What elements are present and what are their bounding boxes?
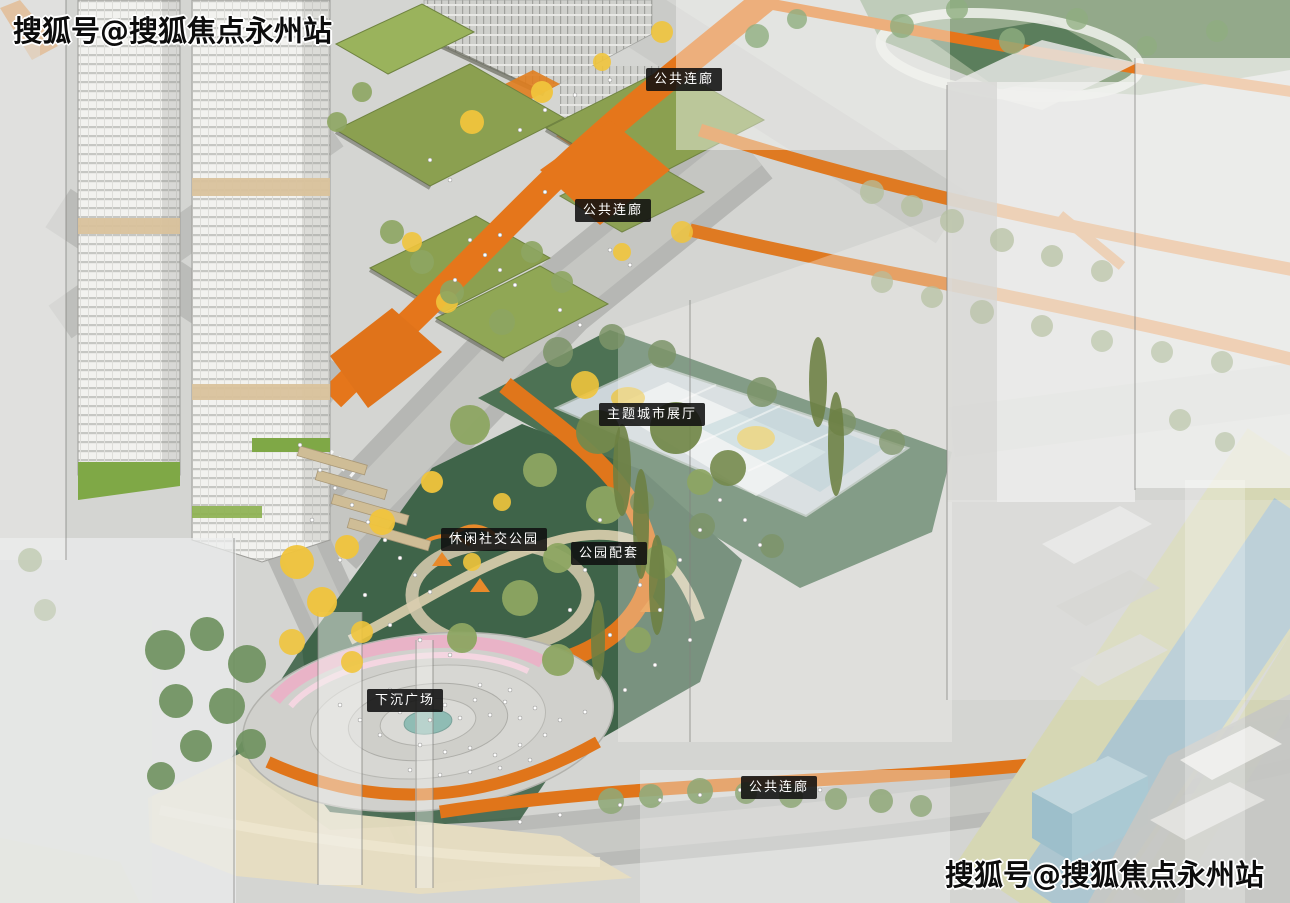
label-leisure-social-park: 休闲社交公园	[441, 528, 547, 551]
label-public-corridor-bottom: 公共连廊	[741, 776, 817, 799]
label-theme-city-exhibition-hall: 主题城市展厅	[599, 403, 705, 426]
label-park-amenities: 公园配套	[571, 542, 647, 565]
label-public-corridor-mid: 公共连廊	[575, 199, 651, 222]
watermark-bottom-right: 搜狐号@搜狐焦点永州站	[945, 852, 1264, 894]
label-public-corridor-top: 公共连廊	[646, 68, 722, 91]
scene-canvas	[0, 0, 1290, 903]
tower-left	[78, 0, 180, 500]
label-sunken-plaza: 下沉广场	[367, 689, 443, 712]
tower-right	[192, 0, 330, 562]
masterplan-rendering: 公共连廊 公共连廊 主题城市展厅 休闲社交公园 公园配套 下沉广场 公共连廊 搜…	[0, 0, 1290, 903]
watermark-top-left: 搜狐号@搜狐焦点永州站	[13, 8, 332, 50]
